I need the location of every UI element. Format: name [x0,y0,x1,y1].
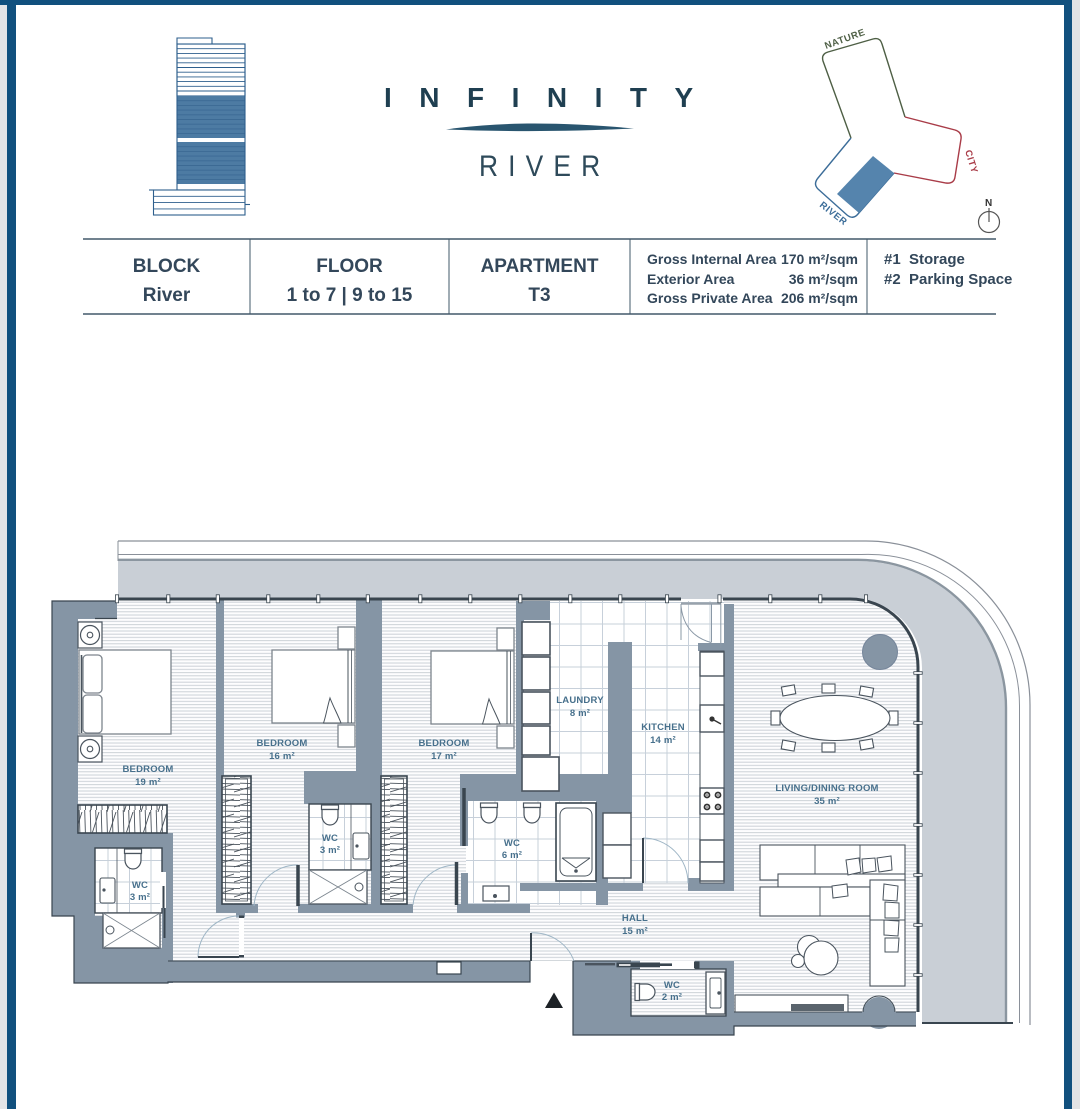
svg-text:15 m²: 15 m² [622,926,648,937]
svg-text:HALL: HALL [622,913,648,924]
svg-text:BEDROOM: BEDROOM [122,764,173,775]
svg-text:8 m²: 8 m² [570,708,590,719]
svg-text:LAUNDRY: LAUNDRY [556,695,604,706]
svg-text:16 m²: 16 m² [269,751,295,762]
svg-text:WC: WC [132,880,148,891]
svg-text:WC: WC [504,838,520,849]
svg-text:14 m²: 14 m² [650,735,676,746]
svg-text:35 m²: 35 m² [814,796,840,807]
svg-text:3 m²: 3 m² [130,892,150,903]
svg-text:BEDROOM: BEDROOM [256,738,307,749]
svg-text:17 m²: 17 m² [431,751,457,762]
svg-text:WC: WC [664,980,680,991]
svg-text:WC: WC [322,833,338,844]
svg-text:BEDROOM: BEDROOM [418,738,469,749]
svg-text:2 m²: 2 m² [662,992,682,1003]
svg-text:LIVING/DINING ROOM: LIVING/DINING ROOM [775,783,878,794]
svg-text:19 m²: 19 m² [135,777,161,788]
svg-text:KITCHEN: KITCHEN [641,722,685,733]
svg-text:3 m²: 3 m² [320,845,340,856]
svg-text:6 m²: 6 m² [502,850,522,861]
